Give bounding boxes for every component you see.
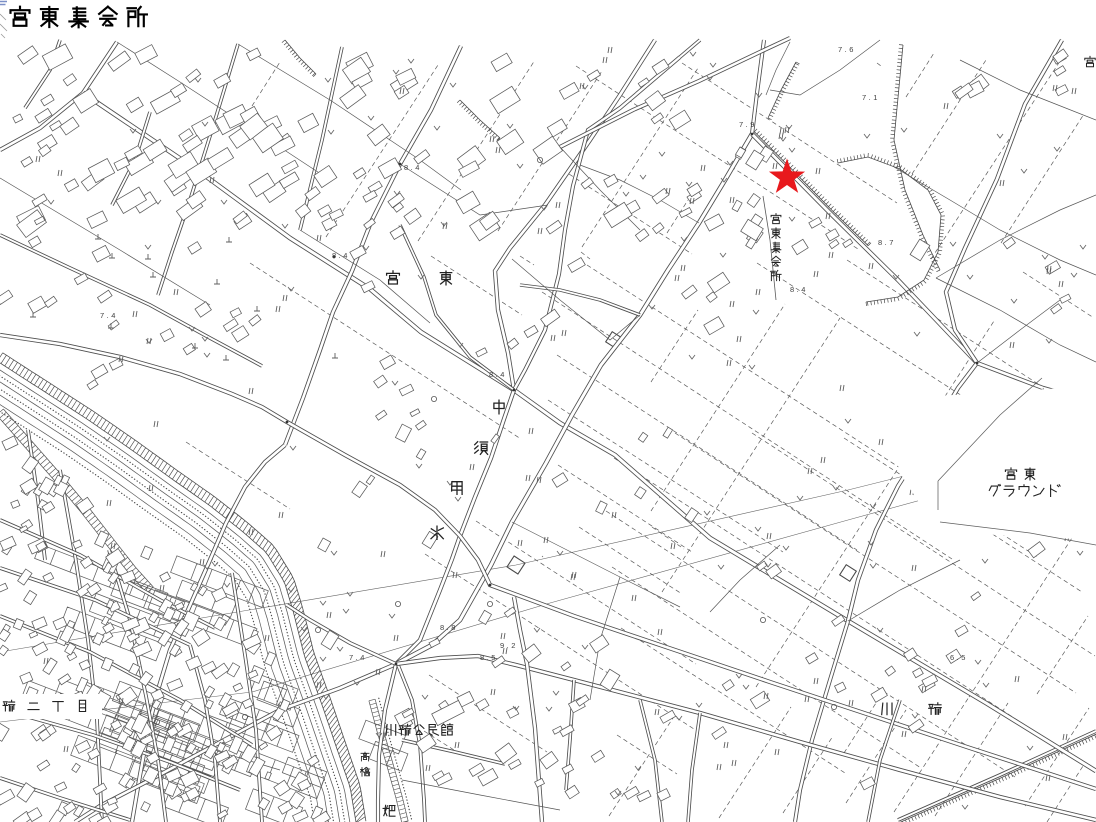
svg-text:8.4: 8.4 [489,370,507,379]
svg-text:7.1: 7.1 [862,93,880,102]
svg-text:9.2: 9.2 [500,641,518,650]
svg-text:8.4: 8.4 [404,163,422,172]
svg-text:8.5: 8.5 [480,653,498,662]
svg-text:6.5: 6.5 [950,653,968,662]
svg-text:7.4: 7.4 [100,311,118,320]
svg-text:7.4: 7.4 [349,653,367,662]
svg-text:8.8: 8.8 [440,623,458,632]
svg-text:7.9: 7.9 [739,120,757,129]
svg-text:8.4: 8.4 [790,285,808,294]
svg-text:8.4: 8.4 [332,251,350,260]
svg-text:7.6: 7.6 [838,45,856,54]
svg-text:8.7: 8.7 [878,238,896,247]
